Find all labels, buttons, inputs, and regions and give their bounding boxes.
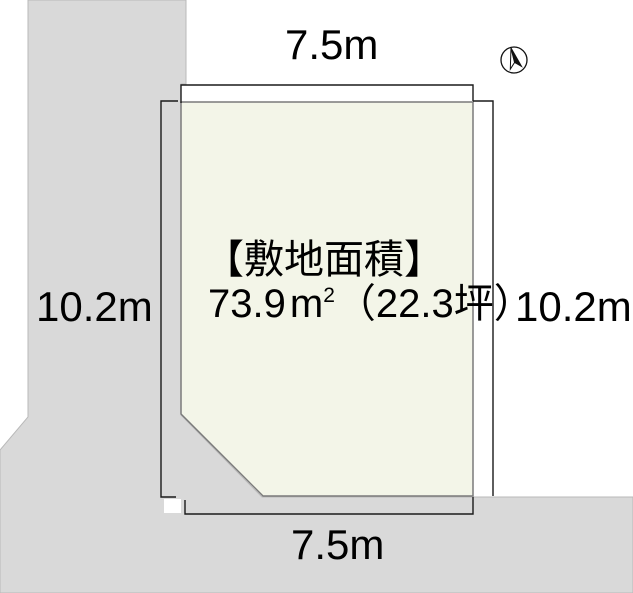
dimension-label-top: 7.5m <box>285 24 378 66</box>
site-area-value: 73.9m2（22.3坪） <box>208 284 534 324</box>
dimension-label-bottom: 7.5m <box>291 524 384 566</box>
site-area-number: 73.9 <box>208 282 286 326</box>
dimension-line-top <box>181 85 473 103</box>
site-area-unit-exponent: 2 <box>323 284 335 307</box>
site-area-tsubo: （22.3坪） <box>336 282 534 326</box>
dimension-label-left: 10.2m <box>36 286 153 328</box>
dimension-gap-notch <box>164 499 181 513</box>
north-compass-icon <box>501 46 527 73</box>
site-area-unit: m <box>290 282 323 326</box>
land-plot-diagram: 7.5m 10.2m 10.2m 7.5m 【敷地面積】 73.9m2（22.3… <box>0 0 633 593</box>
site-area-heading: 【敷地面積】 <box>204 240 444 280</box>
